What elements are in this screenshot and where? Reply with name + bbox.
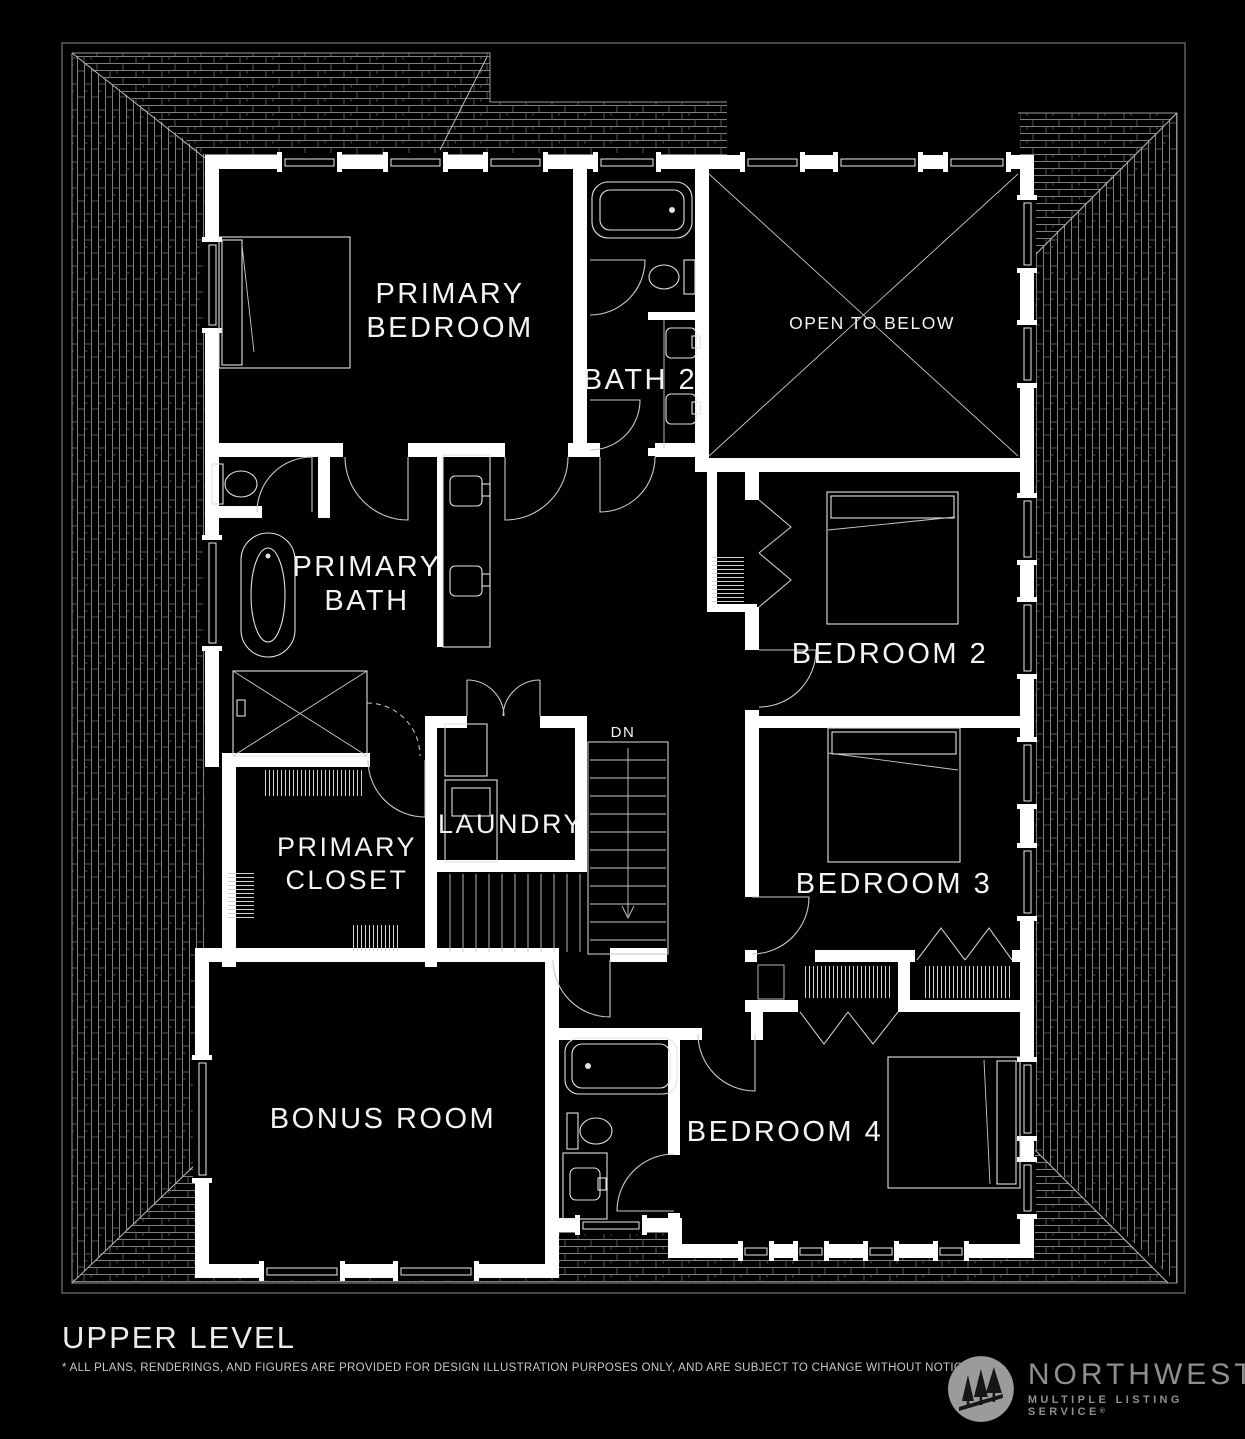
toilet-symbol: [649, 260, 695, 294]
room-label-bedroom3: BEDROOM 3: [796, 868, 993, 900]
vanity-sink-symbol: [563, 1153, 607, 1219]
room-label-laundry: LAUNDRY: [438, 809, 584, 839]
room-label-open-to-below: OPEN TO BELOW: [789, 313, 955, 333]
room-label-primary-bath-line1: PRIMARY: [292, 551, 441, 583]
bed-symbol: [827, 492, 958, 624]
window-glyph: [833, 152, 923, 172]
window-glyph: [259, 1261, 345, 1281]
window-glyph: [383, 152, 448, 172]
window-glyph: [1017, 320, 1037, 388]
window-glyph: [593, 152, 661, 172]
window-glyph: [202, 535, 222, 651]
room-label-bonus-room: BONUS ROOM: [270, 1103, 496, 1135]
room-label-bath2: BATH 2: [583, 364, 697, 396]
shower-symbol: [233, 671, 420, 756]
vanity-sinks-symbol: [443, 455, 490, 647]
window-glyph: [483, 152, 548, 172]
toilet-symbol: [567, 1113, 612, 1149]
bed-symbol: [219, 237, 350, 368]
bathtub-symbol: [592, 182, 692, 238]
window-glyph: [575, 1215, 647, 1235]
logo-tagline: MULTIPLE LISTING SERVICE®: [1028, 1394, 1245, 1418]
room-label-bedroom4: BEDROOM 4: [687, 1116, 884, 1148]
window-glyph: [943, 152, 1011, 172]
floor-plan-drawing: PRIMARY BEDROOM BATH 2 OPEN TO BELOW PRI…: [0, 0, 1245, 1439]
floor-plan-page: PRIMARY BEDROOM BATH 2 OPEN TO BELOW PRI…: [0, 0, 1245, 1439]
closet-hatches: [228, 556, 1010, 999]
logo-name: NORTHWEST: [1028, 1360, 1245, 1390]
bed-symbol: [888, 1057, 1020, 1188]
nwmls-logo: NORTHWEST MULTIPLE LISTING SERVICE®: [948, 1355, 1245, 1423]
fixtures: [212, 182, 1020, 1219]
linen-shelves: [450, 874, 580, 952]
disclaimer-text: * ALL PLANS, RENDERINGS, AND FIGURES ARE…: [62, 1362, 970, 1374]
window-glyph: [863, 1241, 899, 1261]
room-label-primary-bedroom-line1: PRIMARY: [375, 278, 524, 310]
window-glyph: [740, 152, 805, 172]
window-glyph: [1017, 195, 1037, 273]
window-glyph: [1017, 843, 1037, 921]
freestanding-tub-symbol: [241, 533, 295, 657]
room-label-bedroom2: BEDROOM 2: [792, 638, 989, 670]
bed-symbol: [828, 728, 960, 862]
window-glyph: [933, 1241, 969, 1261]
window-glyph: [793, 1241, 829, 1261]
stairs-dn-label: DN: [611, 724, 636, 741]
logo-registered-mark: ®: [1100, 1408, 1105, 1415]
room-label-primary-bath-line2: BATH: [324, 585, 409, 617]
washer-dryer-symbol: [445, 724, 497, 862]
window-glyph: [192, 1055, 212, 1183]
window-glyph: [1017, 737, 1037, 809]
window-glyph: [393, 1261, 479, 1281]
room-label-primary-closet-line1: PRIMARY: [277, 832, 417, 862]
room-label-primary-bedroom-line2: BEDROOM: [366, 312, 533, 344]
window-glyph: [277, 152, 342, 172]
stairs-symbol: [588, 742, 668, 954]
window-glyph: [1017, 597, 1037, 679]
logo-tagline-text: MULTIPLE LISTING SERVICE: [1028, 1394, 1183, 1418]
door-swings: [257, 260, 816, 1211]
nwmls-logo-text: NORTHWEST MULTIPLE LISTING SERVICE®: [1028, 1360, 1245, 1418]
window-glyph: [1017, 493, 1037, 565]
nwmls-logo-mark: [948, 1355, 1014, 1423]
window-glyph: [738, 1241, 774, 1261]
bathtub-symbol: [565, 1038, 677, 1094]
room-labels: PRIMARY BEDROOM BATH 2 OPEN TO BELOW PRI…: [270, 278, 992, 1148]
room-label-primary-closet-line2: CLOSET: [285, 865, 408, 895]
bifold-doors: [759, 500, 1012, 1044]
level-title: UPPER LEVEL: [62, 1320, 296, 1356]
